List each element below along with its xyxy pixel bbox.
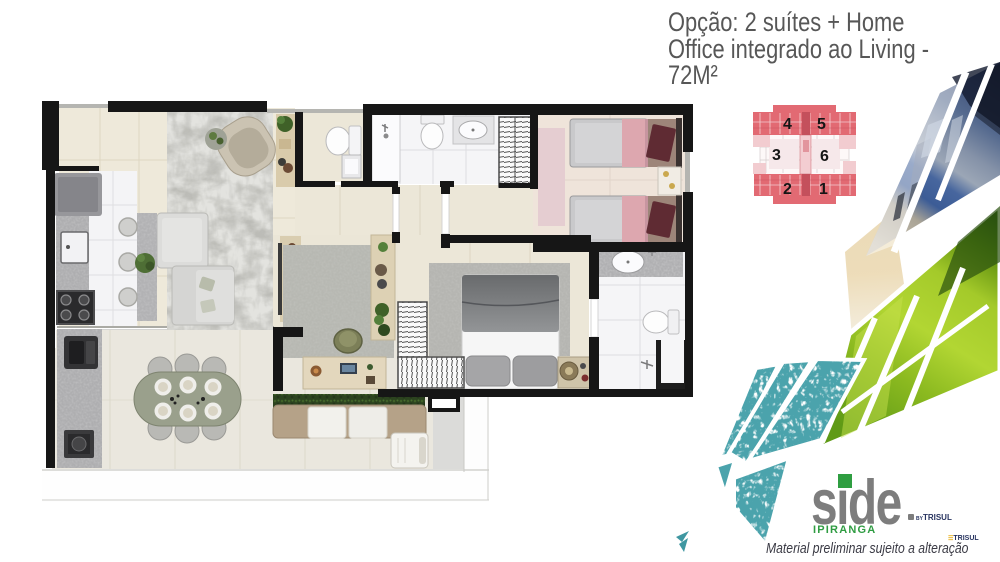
svg-text:3: 3 [772,147,781,164]
svg-text:4: 4 [783,116,792,133]
svg-text:6: 6 [820,148,829,165]
svg-text:1: 1 [819,181,828,198]
svg-text:2: 2 [783,181,792,198]
svg-text:5: 5 [817,116,826,133]
